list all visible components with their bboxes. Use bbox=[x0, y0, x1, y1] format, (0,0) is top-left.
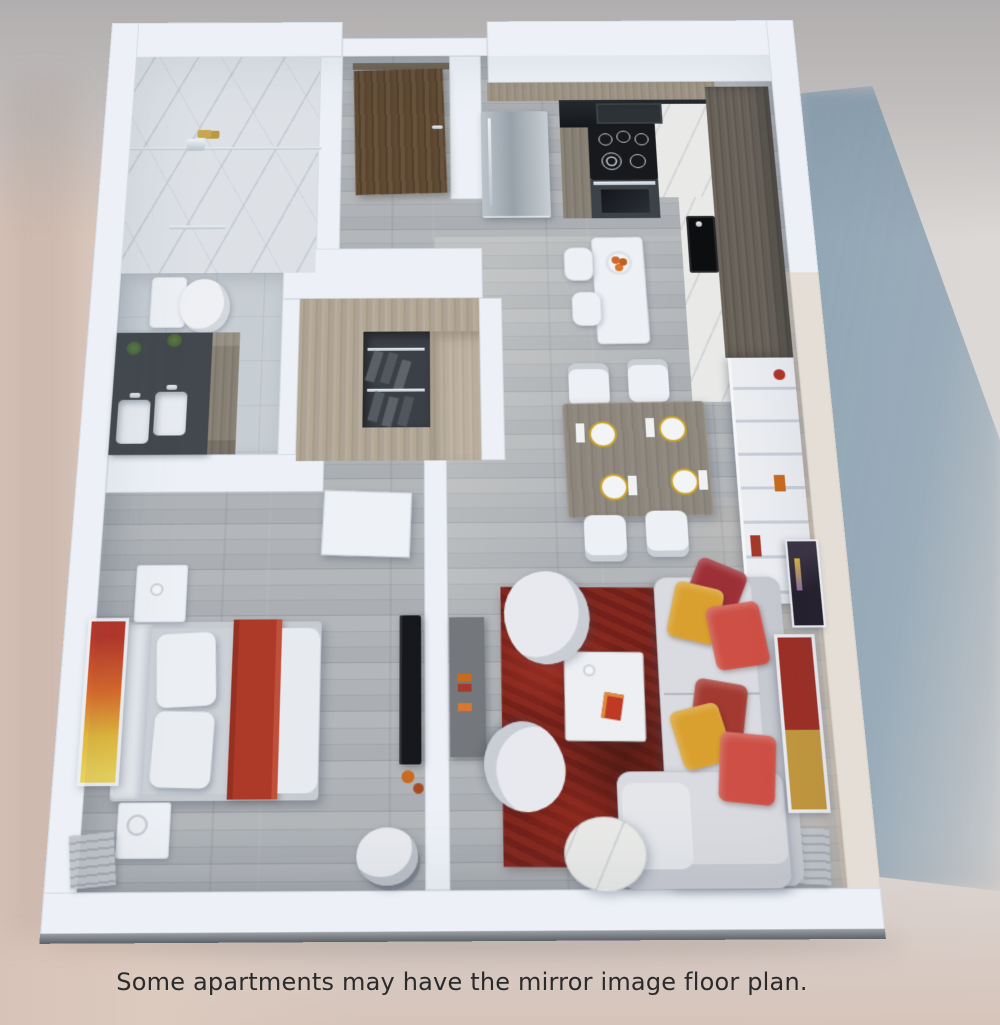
bathroom-right-wall bbox=[316, 57, 343, 251]
shelf-book-red bbox=[750, 535, 762, 556]
burner-5 bbox=[629, 154, 646, 168]
faucet-left bbox=[129, 393, 140, 398]
burner-2 bbox=[616, 131, 631, 143]
outer-wall-top-left bbox=[109, 22, 342, 58]
shower-head bbox=[186, 139, 205, 151]
bedroom-door bbox=[321, 490, 412, 557]
place-setting-3 bbox=[599, 474, 629, 501]
tv-panel bbox=[399, 615, 421, 764]
kitchen-stool-2 bbox=[571, 292, 602, 326]
pillow-red-2 bbox=[718, 731, 776, 806]
caption-text: Some apartments may have the mirror imag… bbox=[0, 968, 924, 996]
bed-pillow-2 bbox=[149, 711, 216, 789]
coffee-table-book bbox=[601, 692, 624, 721]
media-console bbox=[449, 617, 486, 757]
bed-pillow-1 bbox=[156, 631, 216, 708]
floor-vase-2 bbox=[413, 783, 424, 794]
napkin-3 bbox=[628, 476, 638, 496]
entry-kitchen-wall-stub bbox=[449, 56, 483, 199]
shower-marble-area bbox=[121, 57, 320, 274]
kitchen-soffit bbox=[487, 82, 716, 102]
burner-1 bbox=[598, 133, 613, 145]
napkin-4 bbox=[698, 470, 708, 490]
dining-chair-top-left bbox=[568, 363, 610, 406]
bed-duvet bbox=[277, 628, 320, 793]
shelf-book-orange bbox=[774, 475, 786, 491]
dining-chair-bottom-right bbox=[645, 511, 690, 557]
kitchen-stool-1 bbox=[563, 247, 593, 280]
page: { "caption": { "text": "Some apartments … bbox=[0, 0, 1000, 1025]
vanity-sink-right bbox=[153, 392, 188, 436]
burner-4 bbox=[601, 152, 622, 170]
oven-handle bbox=[593, 181, 655, 185]
faucet-right bbox=[166, 385, 177, 390]
shelf-ball-red bbox=[773, 369, 786, 380]
console-book-orange bbox=[458, 674, 472, 682]
outer-wall-bottom bbox=[40, 888, 885, 935]
closet-step bbox=[430, 331, 482, 460]
floor-vase-1 bbox=[402, 770, 415, 783]
bedroom-radiator bbox=[69, 831, 116, 889]
vanity-drawers bbox=[207, 332, 240, 454]
coffee-table-cup bbox=[583, 664, 596, 676]
bedroom-top-wall bbox=[106, 454, 325, 493]
entry-door-handle bbox=[432, 125, 443, 128]
microwave bbox=[596, 103, 663, 124]
closet-right-wall bbox=[479, 298, 506, 460]
napkin-1 bbox=[576, 423, 585, 442]
shampoo-bottles bbox=[197, 130, 211, 138]
burner-3 bbox=[634, 133, 649, 145]
outer-wall-top-kitchen bbox=[487, 20, 799, 83]
dining-chair-top-right bbox=[627, 359, 670, 402]
napkin-2 bbox=[645, 418, 655, 437]
outer-wall-top-notch bbox=[342, 38, 487, 57]
dining-table bbox=[562, 401, 714, 519]
bed-blanket-red bbox=[227, 619, 283, 799]
kitchen-base-cabinets bbox=[560, 127, 592, 218]
papasan-chair bbox=[356, 827, 418, 886]
entry-door bbox=[354, 68, 448, 195]
oranges bbox=[611, 256, 620, 263]
vanity-sink-left bbox=[116, 400, 151, 444]
dining-chair-bottom-left bbox=[584, 515, 628, 562]
sink-faucet bbox=[696, 221, 703, 226]
fruit-bowl bbox=[605, 251, 633, 275]
bedroom-living-wall bbox=[424, 453, 450, 890]
place-setting-1 bbox=[588, 421, 617, 447]
kitchen-sink bbox=[686, 216, 719, 273]
place-setting-2 bbox=[658, 416, 688, 442]
floor-plan-3d bbox=[40, 20, 885, 935]
oven-window bbox=[601, 189, 650, 212]
towel-bar bbox=[170, 225, 226, 229]
